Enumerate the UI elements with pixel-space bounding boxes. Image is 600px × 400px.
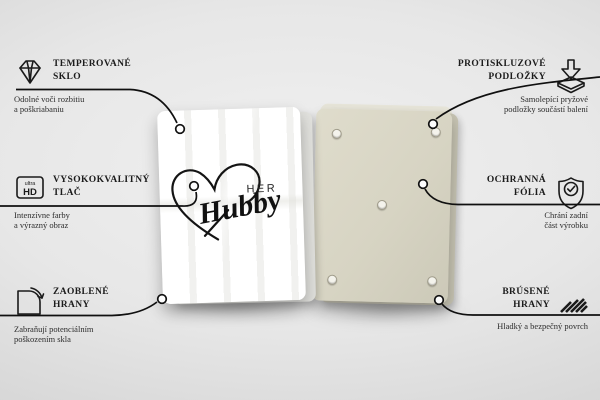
callout-title-line1: PROTISKLUZOVÉ — [458, 58, 546, 71]
callout-desc-line1: Hladký a bezpečný povrch — [410, 322, 588, 332]
callout-title-line1: VYSOKOKVALITNÝ — [53, 174, 150, 187]
hubby-script-text: Hubby — [195, 183, 285, 231]
shield-check-icon — [554, 174, 588, 210]
callout-title-line2: SKLO — [53, 71, 131, 84]
callout-title-line1: ZAOBLENÉ — [53, 286, 109, 299]
diamond-icon — [14, 58, 46, 86]
callout-title-line1: TEMPEROVANÉ — [53, 58, 131, 71]
callout-head: BRÚSENÉ HRANY — [410, 286, 588, 316]
callout-protective-film: OCHRANNÁ FÓLIA Chrání zadní část výrobku — [410, 174, 588, 230]
callout-desc-line2: poškozením skla — [14, 335, 192, 345]
anti-slip-pad — [327, 275, 337, 285]
callout-title-line2: FÓLIA — [514, 187, 546, 200]
anti-slip-pad — [431, 127, 441, 137]
callout-rounded-edges: ZAOBLENÉ HRANY Zabraňují potenciálním po… — [14, 286, 192, 344]
callout-head: PROTISKLUZOVÉ PODLOŽKY — [410, 58, 588, 88]
anti-slip-pad-icon — [554, 58, 588, 94]
callout-desc-line2: podložky součástí balení — [410, 105, 588, 115]
callout-title-line2: PODLOŽKY — [488, 71, 546, 84]
callout-head: ultra HD VYSOKOKVALITNÝ TLAČ — [14, 174, 192, 204]
callout-desc-line2: a výrazný obraz — [14, 221, 192, 231]
callout-tempered-glass: TEMPEROVANÉ SKLO Odolné voči rozbitiu a … — [14, 58, 192, 114]
anti-slip-pad — [427, 276, 437, 286]
callout-title-line1: OCHRANNÁ — [487, 174, 546, 187]
ultra-hd-icon: ultra HD — [14, 174, 46, 202]
callout-desc-line2: a poškriabaniu — [14, 105, 192, 115]
callout-title-line2: HRANY — [53, 299, 109, 312]
callout-anti-slip-pads: PROTISKLUZOVÉ PODLOŽKY Samolepící pryžov… — [410, 58, 588, 114]
callout-head: OCHRANNÁ FÓLIA — [410, 174, 588, 204]
callout-title-line1: BRÚSENÉ — [502, 286, 550, 299]
rounded-corner-icon — [14, 286, 46, 316]
anti-slip-pad — [332, 129, 342, 139]
callout-title-line2: HRANY — [513, 299, 550, 312]
callout-head: TEMPEROVANÉ SKLO — [14, 58, 192, 88]
ground-edges-icon — [558, 286, 588, 314]
callout-desc-line2: část výrobku — [410, 221, 588, 231]
anti-slip-pad — [377, 200, 387, 210]
callout-head: ZAOBLENÉ HRANY — [14, 286, 192, 316]
callout-high-quality-print: ultra HD VYSOKOKVALITNÝ TLAČ Intenzívne … — [14, 174, 192, 230]
callout-title-line2: TLAČ — [53, 187, 150, 200]
callout-ground-edges: BRÚSENÉ HRANY Hladký a bezpečný povrch — [410, 286, 588, 332]
product-feature-infographic: HER Hubby TEMPEROVANÉ SKLO Odolné voči r… — [0, 0, 600, 400]
hd-label: HD — [23, 187, 37, 198]
